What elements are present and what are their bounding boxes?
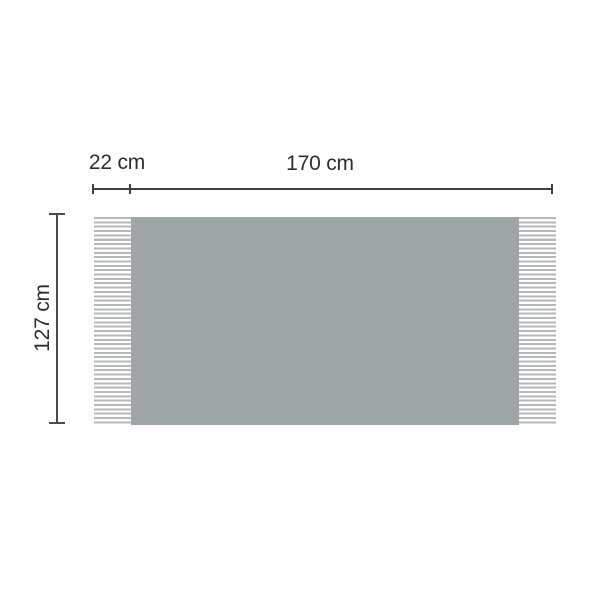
height-dimension-line [56,214,58,423]
dimension-cap-bottom [49,422,65,424]
left-fringe [94,217,131,426]
blanket-height-label: 127 cm [31,284,55,352]
blanket-width-label: 170 cm [286,152,354,176]
dimension-tick-left [92,184,94,194]
blanket-body [131,217,519,425]
blanket-dimension-diagram: 22 cm 170 cm 127 cm [0,0,600,600]
dimension-tick-fringe-boundary [129,184,131,194]
fringe-width-label: 22 cm [89,151,145,175]
dimension-cap-top [49,213,65,215]
right-fringe [519,217,556,426]
width-dimension-line [92,188,552,190]
dimension-tick-right [551,184,553,194]
